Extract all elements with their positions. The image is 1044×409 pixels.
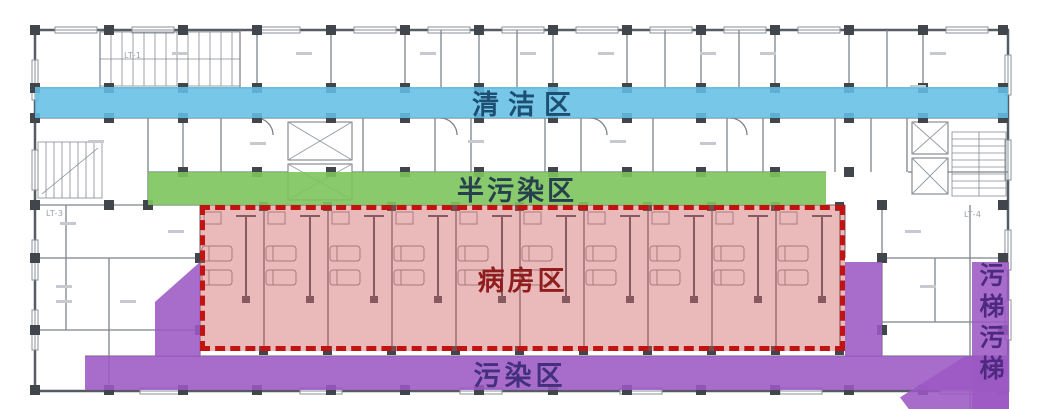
zone-semi-contaminated: 半污染区 [148,172,826,205]
stair-label-lt1: LT-1 [124,51,141,60]
zone-contaminated-label: 污染区 [474,354,567,393]
zone-contaminated-right-arm [845,262,882,357]
zone-dirty-elevator: 污梯 污梯 [972,262,1009,409]
zone-semi-contaminated-label: 半污染区 [457,169,577,208]
zone-clean: 清洁区 [35,87,1008,118]
zone-clean-label: 清洁区 [463,83,580,122]
dirty-elevator-label: 污梯 [972,262,1009,324]
stair-label-lt3: LT-3 [46,209,63,218]
dirty-elevator-label-2: 污梯 [972,324,1009,386]
floor-plan: 污染区 污梯 污梯 清洁区 半污染区 病房区 LT-1 LT-3 LT-4 [0,0,1044,409]
stair-label-lt4: LT-4 [964,210,981,219]
zone-ward: 病房区 [200,205,845,351]
zone-ward-label: 病房区 [478,259,568,298]
zone-contaminated: 污染区 [85,356,1009,390]
